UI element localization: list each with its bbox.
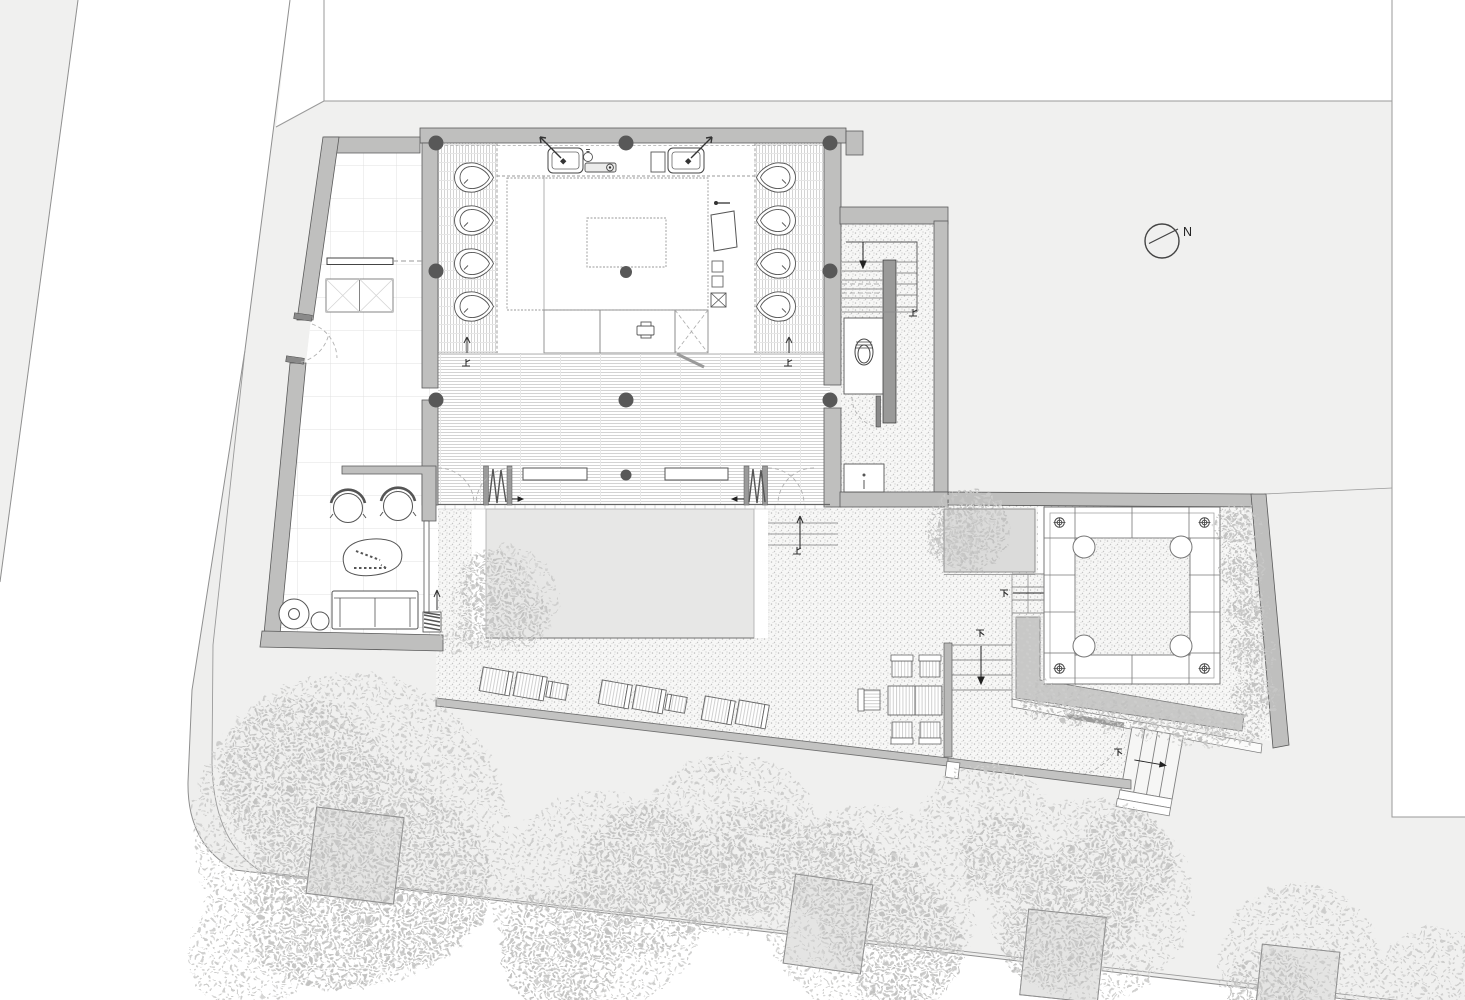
svg-text:N: N (1183, 225, 1192, 239)
